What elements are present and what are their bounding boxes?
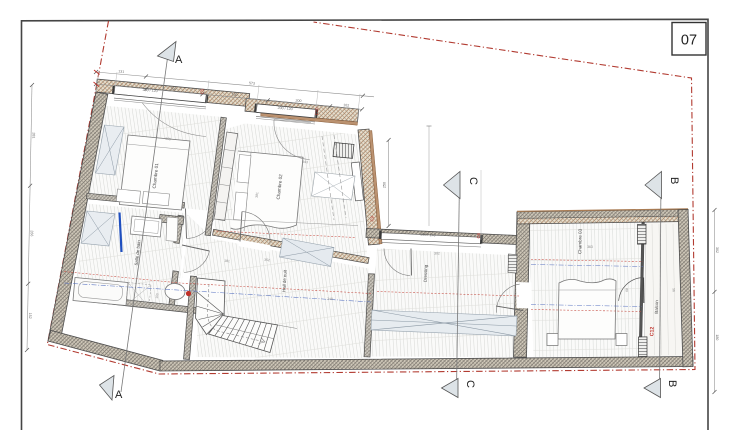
svg-text:102: 102 xyxy=(343,103,349,108)
svg-text:250: 250 xyxy=(382,182,386,188)
svg-text:302: 302 xyxy=(715,247,719,253)
svg-text:266: 266 xyxy=(30,230,34,236)
svg-text:07: 07 xyxy=(681,33,697,49)
svg-text:B: B xyxy=(668,177,680,184)
svg-text:Balcon: Balcon xyxy=(654,300,659,314)
svg-text:152: 152 xyxy=(28,313,32,319)
svg-text:369: 369 xyxy=(165,137,171,142)
svg-text:200: 200 xyxy=(170,87,176,92)
svg-text:95: 95 xyxy=(672,288,676,292)
svg-text:131: 131 xyxy=(118,69,124,74)
svg-text:363: 363 xyxy=(587,245,593,249)
svg-text:180: 180 xyxy=(715,334,719,340)
svg-text:C12: C12 xyxy=(649,327,655,337)
svg-text:B: B xyxy=(666,380,678,387)
svg-text:206 / 140: 206 / 140 xyxy=(420,233,435,238)
svg-text:Dressing: Dressing xyxy=(423,264,429,282)
svg-text:C10: C10 xyxy=(314,107,320,116)
svg-text:248: 248 xyxy=(327,297,333,301)
svg-text:343: 343 xyxy=(302,160,308,165)
svg-text:302: 302 xyxy=(434,252,440,256)
svg-text:381: 381 xyxy=(255,192,260,198)
svg-text:181: 181 xyxy=(224,259,230,264)
svg-text:C: C xyxy=(467,177,479,185)
svg-text:281: 281 xyxy=(32,132,36,138)
svg-text:100: 100 xyxy=(155,293,160,299)
svg-text:C: C xyxy=(464,380,476,388)
svg-text:A: A xyxy=(115,389,123,401)
svg-text:68: 68 xyxy=(625,288,629,292)
svg-text:150: 150 xyxy=(231,92,237,97)
svg-text:Chambre 03: Chambre 03 xyxy=(577,228,582,254)
svg-text:A: A xyxy=(175,54,183,66)
svg-text:573: 573 xyxy=(249,81,255,86)
svg-text:200: 200 xyxy=(295,99,301,104)
svg-text:352: 352 xyxy=(264,258,270,263)
